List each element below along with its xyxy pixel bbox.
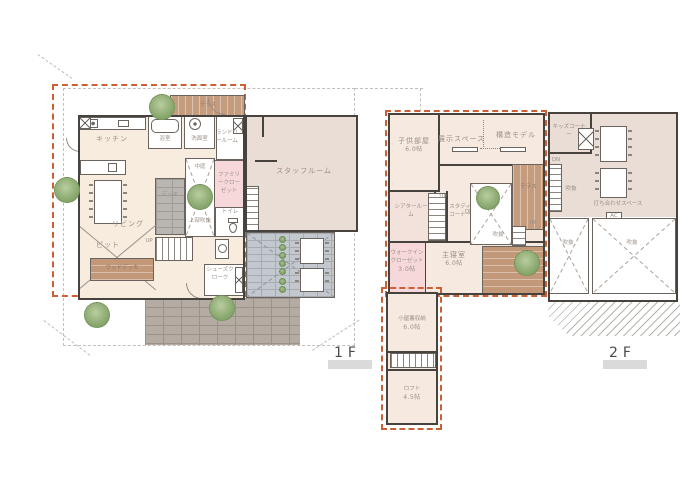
floor2-label-bar bbox=[603, 360, 647, 369]
stairs-entry bbox=[246, 186, 259, 232]
meeting-space-label: 打ち合わせスペース bbox=[586, 201, 650, 209]
terrace-table-2 bbox=[300, 268, 324, 292]
sink-icon bbox=[218, 244, 227, 253]
shrub-icon bbox=[279, 244, 286, 251]
attic-name: 小屋裏収納 bbox=[398, 316, 426, 322]
display-dotted-line-v bbox=[483, 120, 484, 147]
terrace-2f-label: テラス bbox=[512, 184, 545, 192]
display-dotted-line-h bbox=[480, 148, 500, 149]
attic-storage-label: 小屋裏収納 6.0帖 bbox=[392, 316, 432, 333]
master-name: 主寝室 bbox=[442, 251, 466, 259]
shrub-icon bbox=[279, 278, 286, 285]
void-office-1-label: 吹抜 bbox=[558, 240, 578, 248]
family-closet-label: ファミリークローゼット bbox=[216, 172, 242, 196]
void-office-2 bbox=[592, 218, 676, 294]
structure-model-label: 構造モデル bbox=[494, 130, 538, 140]
tree-icon bbox=[209, 295, 235, 321]
tree-icon bbox=[476, 186, 500, 210]
terrace-table-1 bbox=[300, 238, 324, 264]
master-size: 6.0帖 bbox=[428, 260, 480, 269]
tree-icon bbox=[149, 94, 175, 120]
site-line-extension-h bbox=[355, 88, 423, 89]
void-stair-label: 吹抜 bbox=[562, 186, 580, 194]
floor2-label: 2F bbox=[609, 345, 636, 361]
kitchen-island bbox=[80, 160, 126, 175]
floor1-label-bar bbox=[328, 360, 372, 369]
wall-2f-1 bbox=[438, 113, 440, 192]
loft-name: ロフト bbox=[404, 386, 421, 392]
shrub-icon bbox=[279, 268, 286, 275]
kids-room-label: 子供部屋 6.0帖 bbox=[392, 136, 436, 155]
washer-icon bbox=[189, 118, 201, 130]
shaft-x-icon bbox=[578, 128, 594, 150]
kitchen-label: キッチン bbox=[90, 134, 134, 144]
kitchen-sink-icon bbox=[118, 120, 129, 127]
floor-plan-sheet: テラス キッチン 浴室 洗面室 ランドリールーム ファミリークローゼット リビン… bbox=[0, 0, 700, 498]
display-stand-2 bbox=[500, 147, 526, 152]
deck-1f bbox=[155, 178, 185, 235]
bath-label: 浴室 bbox=[152, 136, 178, 144]
shoes-shelf-x-icon bbox=[235, 267, 243, 293]
staff-wall-1 bbox=[262, 115, 264, 137]
site-corner-cut-tl bbox=[37, 54, 72, 79]
tree-icon bbox=[84, 302, 110, 328]
stairs-2f-up-label: UP bbox=[436, 194, 450, 202]
tree-icon bbox=[54, 177, 80, 203]
tree-icon bbox=[514, 250, 540, 276]
shrub-icon bbox=[279, 286, 286, 293]
wood-deck-label: ウッドデッキ bbox=[98, 265, 146, 273]
shoes-closet-label: シューズクローク bbox=[206, 267, 234, 283]
floor1-label: 1F bbox=[334, 345, 361, 361]
deck-1f-label: デッキ bbox=[155, 192, 185, 200]
display-stand-1 bbox=[452, 147, 478, 152]
wic-name: ウォークインクローゼット bbox=[390, 250, 423, 264]
island-sink-icon bbox=[108, 163, 117, 172]
shrub-icon bbox=[279, 260, 286, 267]
dining-table bbox=[94, 180, 122, 224]
stairs-office-dn bbox=[549, 164, 562, 212]
shrub-icon bbox=[279, 252, 286, 259]
laundry-label: ランドリールーム bbox=[214, 130, 240, 146]
roof-hatch bbox=[548, 302, 680, 336]
tree-icon bbox=[187, 184, 213, 210]
kids-room-size: 6.0帖 bbox=[392, 146, 436, 155]
courtyard-void-label: 上部吹抜 bbox=[182, 218, 218, 226]
toilet-label: トイレ bbox=[215, 209, 245, 217]
wall-office-1 bbox=[548, 152, 590, 154]
exhibit-space-label: 展示スペース bbox=[438, 134, 482, 144]
attic-size: 6.0帖 bbox=[392, 324, 432, 333]
loft-label: ロフト 4.5帖 bbox=[392, 386, 432, 403]
meeting-table-1 bbox=[600, 126, 627, 162]
master-bedroom-label: 主寝室 6.0帖 bbox=[428, 250, 480, 269]
courtyard-label: 中庭 bbox=[185, 164, 215, 172]
void-2f-label: 吹抜 bbox=[488, 232, 508, 240]
kids-room-name: 子供部屋 bbox=[398, 137, 430, 145]
study-corner-label: スタディコーナー bbox=[448, 204, 472, 220]
void-office-1 bbox=[549, 218, 589, 294]
pit-label: ピット bbox=[88, 240, 128, 250]
stairs-office-dn-label: DN bbox=[548, 157, 564, 165]
annex-wall-2 bbox=[386, 369, 438, 371]
void-office-2-label: 吹抜 bbox=[622, 240, 642, 248]
shrub-icon bbox=[279, 236, 286, 243]
theater-room-label: シアタールーム bbox=[392, 204, 430, 220]
stairs-1f bbox=[155, 237, 193, 261]
bathtub-icon bbox=[151, 119, 179, 133]
walk-in-closet-label: ウォークインクローゼット 3.0帖 bbox=[390, 250, 424, 275]
stairs-terrace-up-label: UP bbox=[526, 220, 540, 228]
stairs-annex bbox=[390, 353, 436, 368]
washroom-label: 洗面室 bbox=[184, 136, 215, 144]
loft-size: 4.5帖 bbox=[392, 394, 432, 403]
void-cross-icon bbox=[550, 219, 588, 293]
void-cross-icon bbox=[593, 219, 675, 293]
staff-room-label: スタッフルーム bbox=[272, 166, 336, 176]
wic-size: 3.0帖 bbox=[390, 266, 424, 275]
stairs-terrace-2f bbox=[512, 226, 526, 246]
meeting-table-2 bbox=[600, 168, 627, 198]
pantry-shelf-x-icon bbox=[79, 117, 91, 129]
staff-wall-2 bbox=[255, 160, 277, 162]
